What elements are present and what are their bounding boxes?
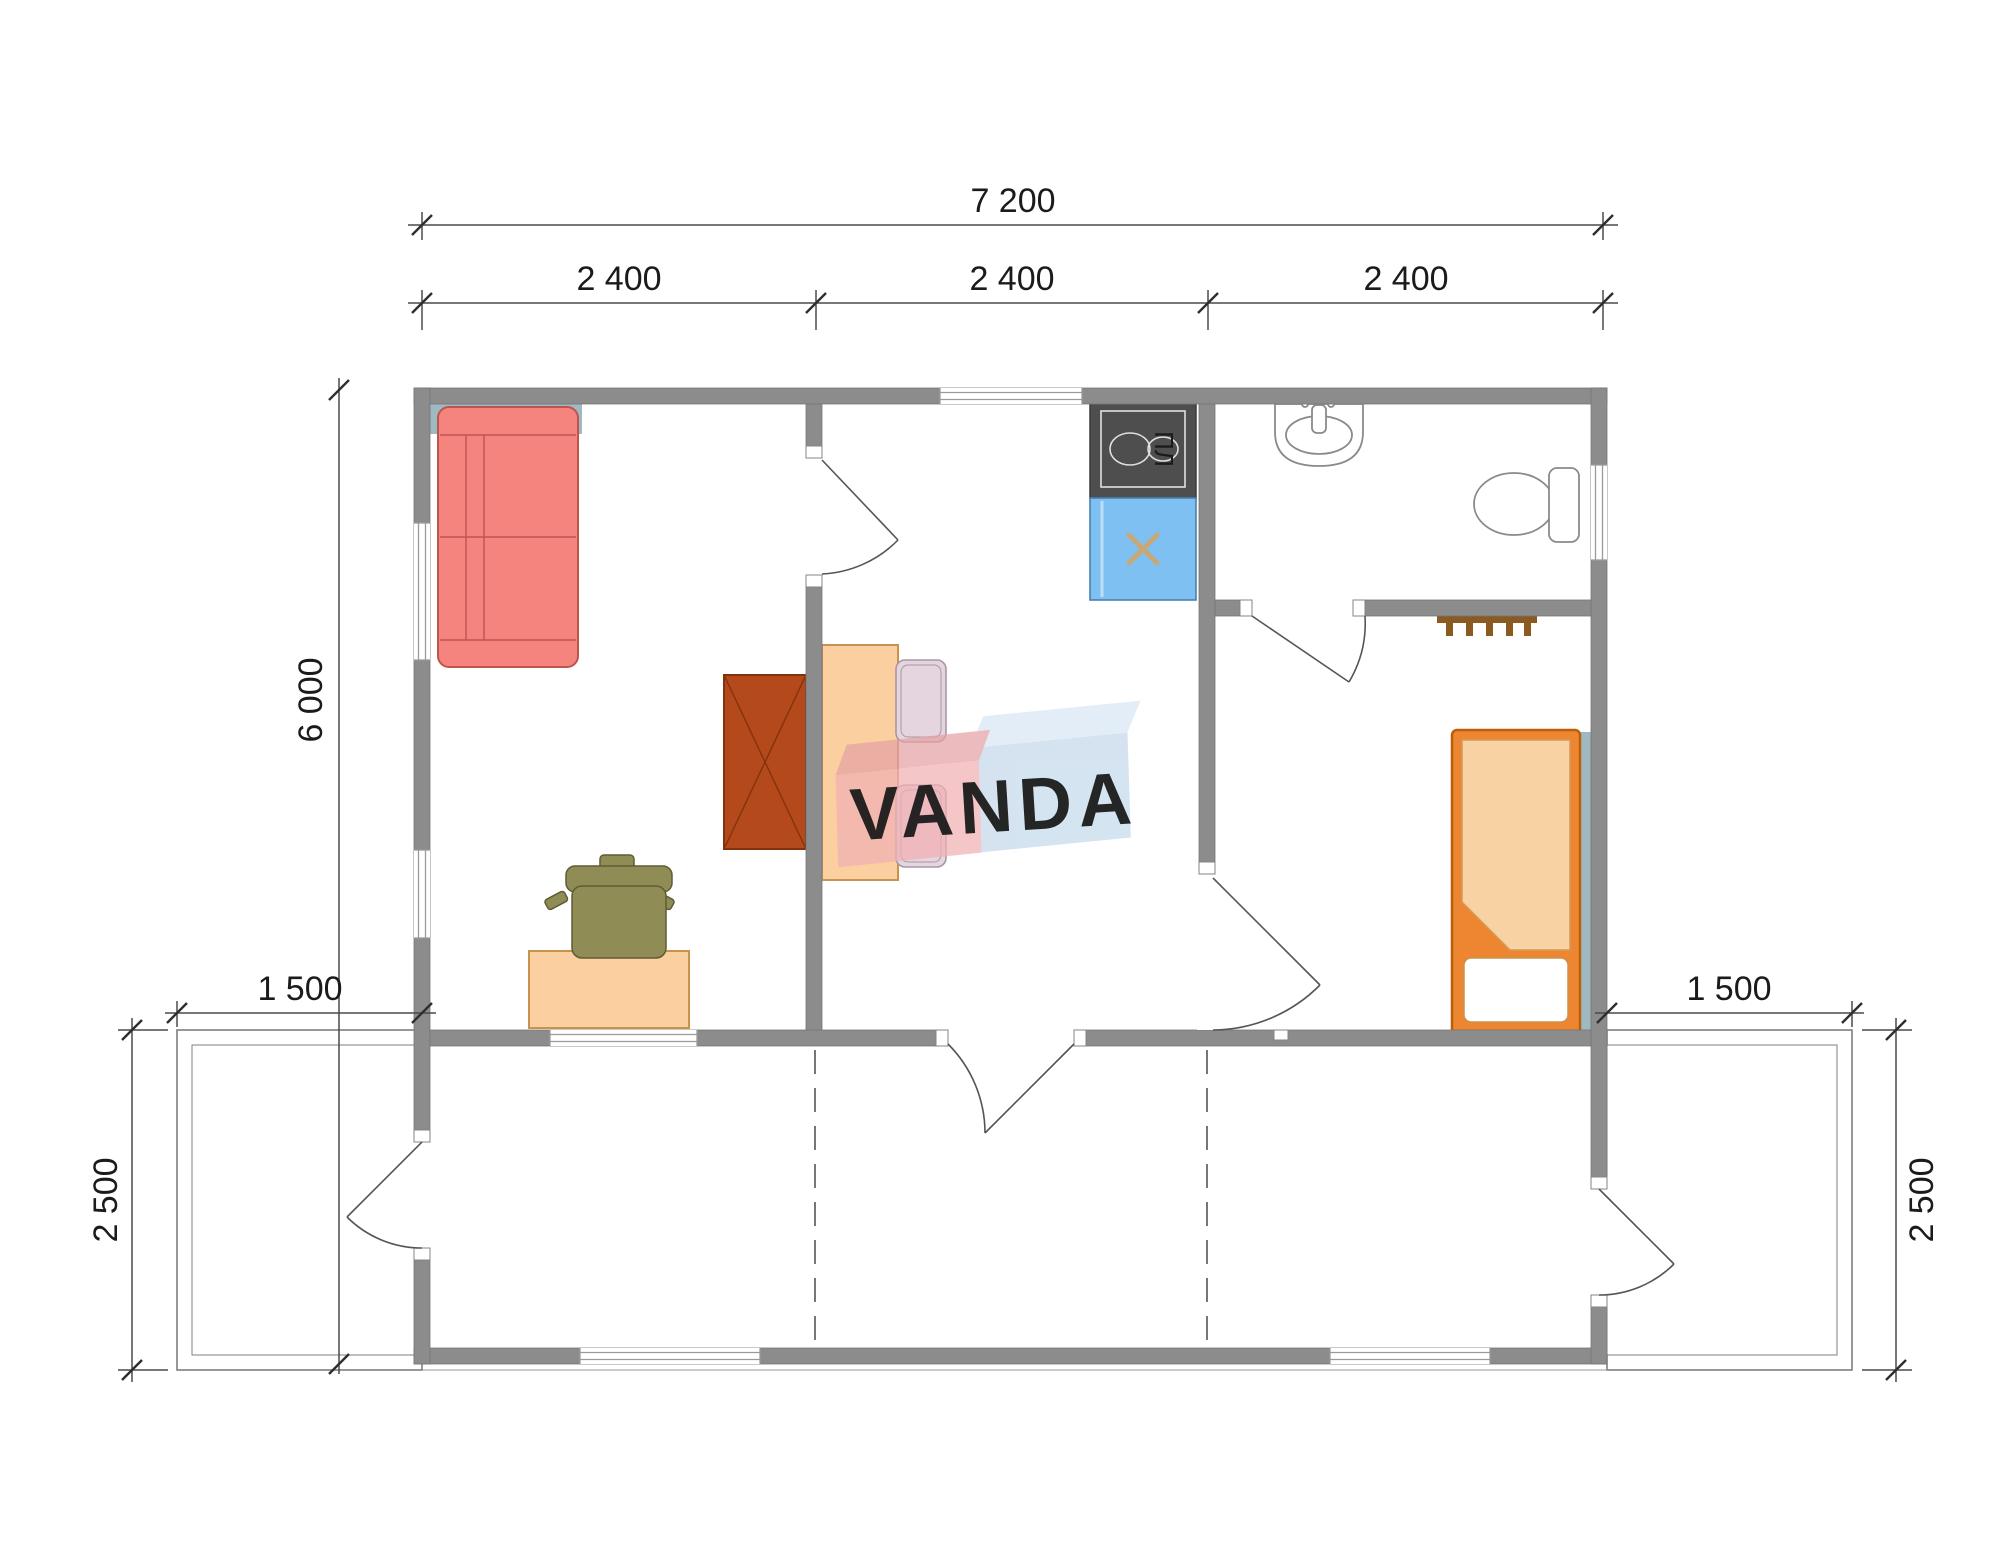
floor-plan-drawing: ПЛ bbox=[0, 0, 2000, 1563]
terrace-right bbox=[1607, 1030, 1852, 1370]
dimension-total-width: 7 200 bbox=[408, 182, 1618, 240]
dining-chair-1 bbox=[896, 660, 946, 742]
window-left-2 bbox=[414, 850, 430, 938]
window-bottom-1 bbox=[580, 1348, 760, 1364]
dim-total-width-label: 7 200 bbox=[970, 182, 1055, 220]
dim-terrace-left-depth-label: 2 500 bbox=[87, 1157, 125, 1242]
corner-sofa bbox=[438, 407, 578, 667]
floor-plan-page: ПЛ bbox=[0, 0, 2000, 1563]
wall-interior-2 bbox=[1199, 404, 1215, 874]
dim-terrace-right-width-label: 1 500 bbox=[1686, 970, 1771, 1008]
dimension-bays: 2 400 2 400 2 400 bbox=[408, 260, 1618, 330]
dim-terrace-left-width-label: 1 500 bbox=[257, 970, 342, 1008]
window-right-bathroom bbox=[1591, 465, 1607, 560]
desk-chair bbox=[544, 855, 675, 958]
wash-basin bbox=[1275, 401, 1363, 466]
window-left-1 bbox=[414, 523, 430, 660]
dimension-terrace-left-width: 1 500 bbox=[165, 970, 436, 1027]
dim-bay-1-label: 2 400 bbox=[576, 260, 661, 298]
window-bottom-2 bbox=[1330, 1348, 1490, 1364]
watermark-text: VANDA bbox=[848, 756, 1140, 856]
dim-bay-2-label: 2 400 bbox=[969, 260, 1054, 298]
dim-total-depth-label: 6 000 bbox=[292, 657, 330, 742]
single-bed bbox=[1452, 730, 1580, 1034]
bed-pillow bbox=[1464, 958, 1568, 1022]
dimension-terrace-left-depth: 2 500 bbox=[87, 1018, 168, 1382]
kitchen-sink-cabinet bbox=[1090, 498, 1196, 600]
desk bbox=[529, 951, 689, 1028]
door-entrance-to-veranda bbox=[936, 1028, 1086, 1133]
toilet bbox=[1474, 468, 1579, 542]
terrace-left bbox=[177, 1030, 422, 1370]
dim-bay-3-label: 2 400 bbox=[1363, 260, 1448, 298]
dim-terrace-right-depth-label: 2 500 bbox=[1903, 1157, 1941, 1242]
door-living-to-kitchen bbox=[804, 446, 898, 587]
coat-rack bbox=[1437, 616, 1537, 636]
door-bathroom bbox=[1240, 598, 1365, 682]
window-middle-desk bbox=[550, 1030, 697, 1046]
door-kitchen-to-bedroom bbox=[1197, 862, 1320, 1040]
wardrobe-cabinet bbox=[724, 675, 806, 849]
stove-label: ПЛ bbox=[1149, 431, 1179, 467]
dimension-terrace-right-width: 1 500 bbox=[1595, 970, 1864, 1027]
dimension-terrace-right-depth: 2 500 bbox=[1862, 1018, 1941, 1382]
stove: ПЛ bbox=[1090, 400, 1196, 498]
window-top-kitchen bbox=[940, 388, 1082, 404]
